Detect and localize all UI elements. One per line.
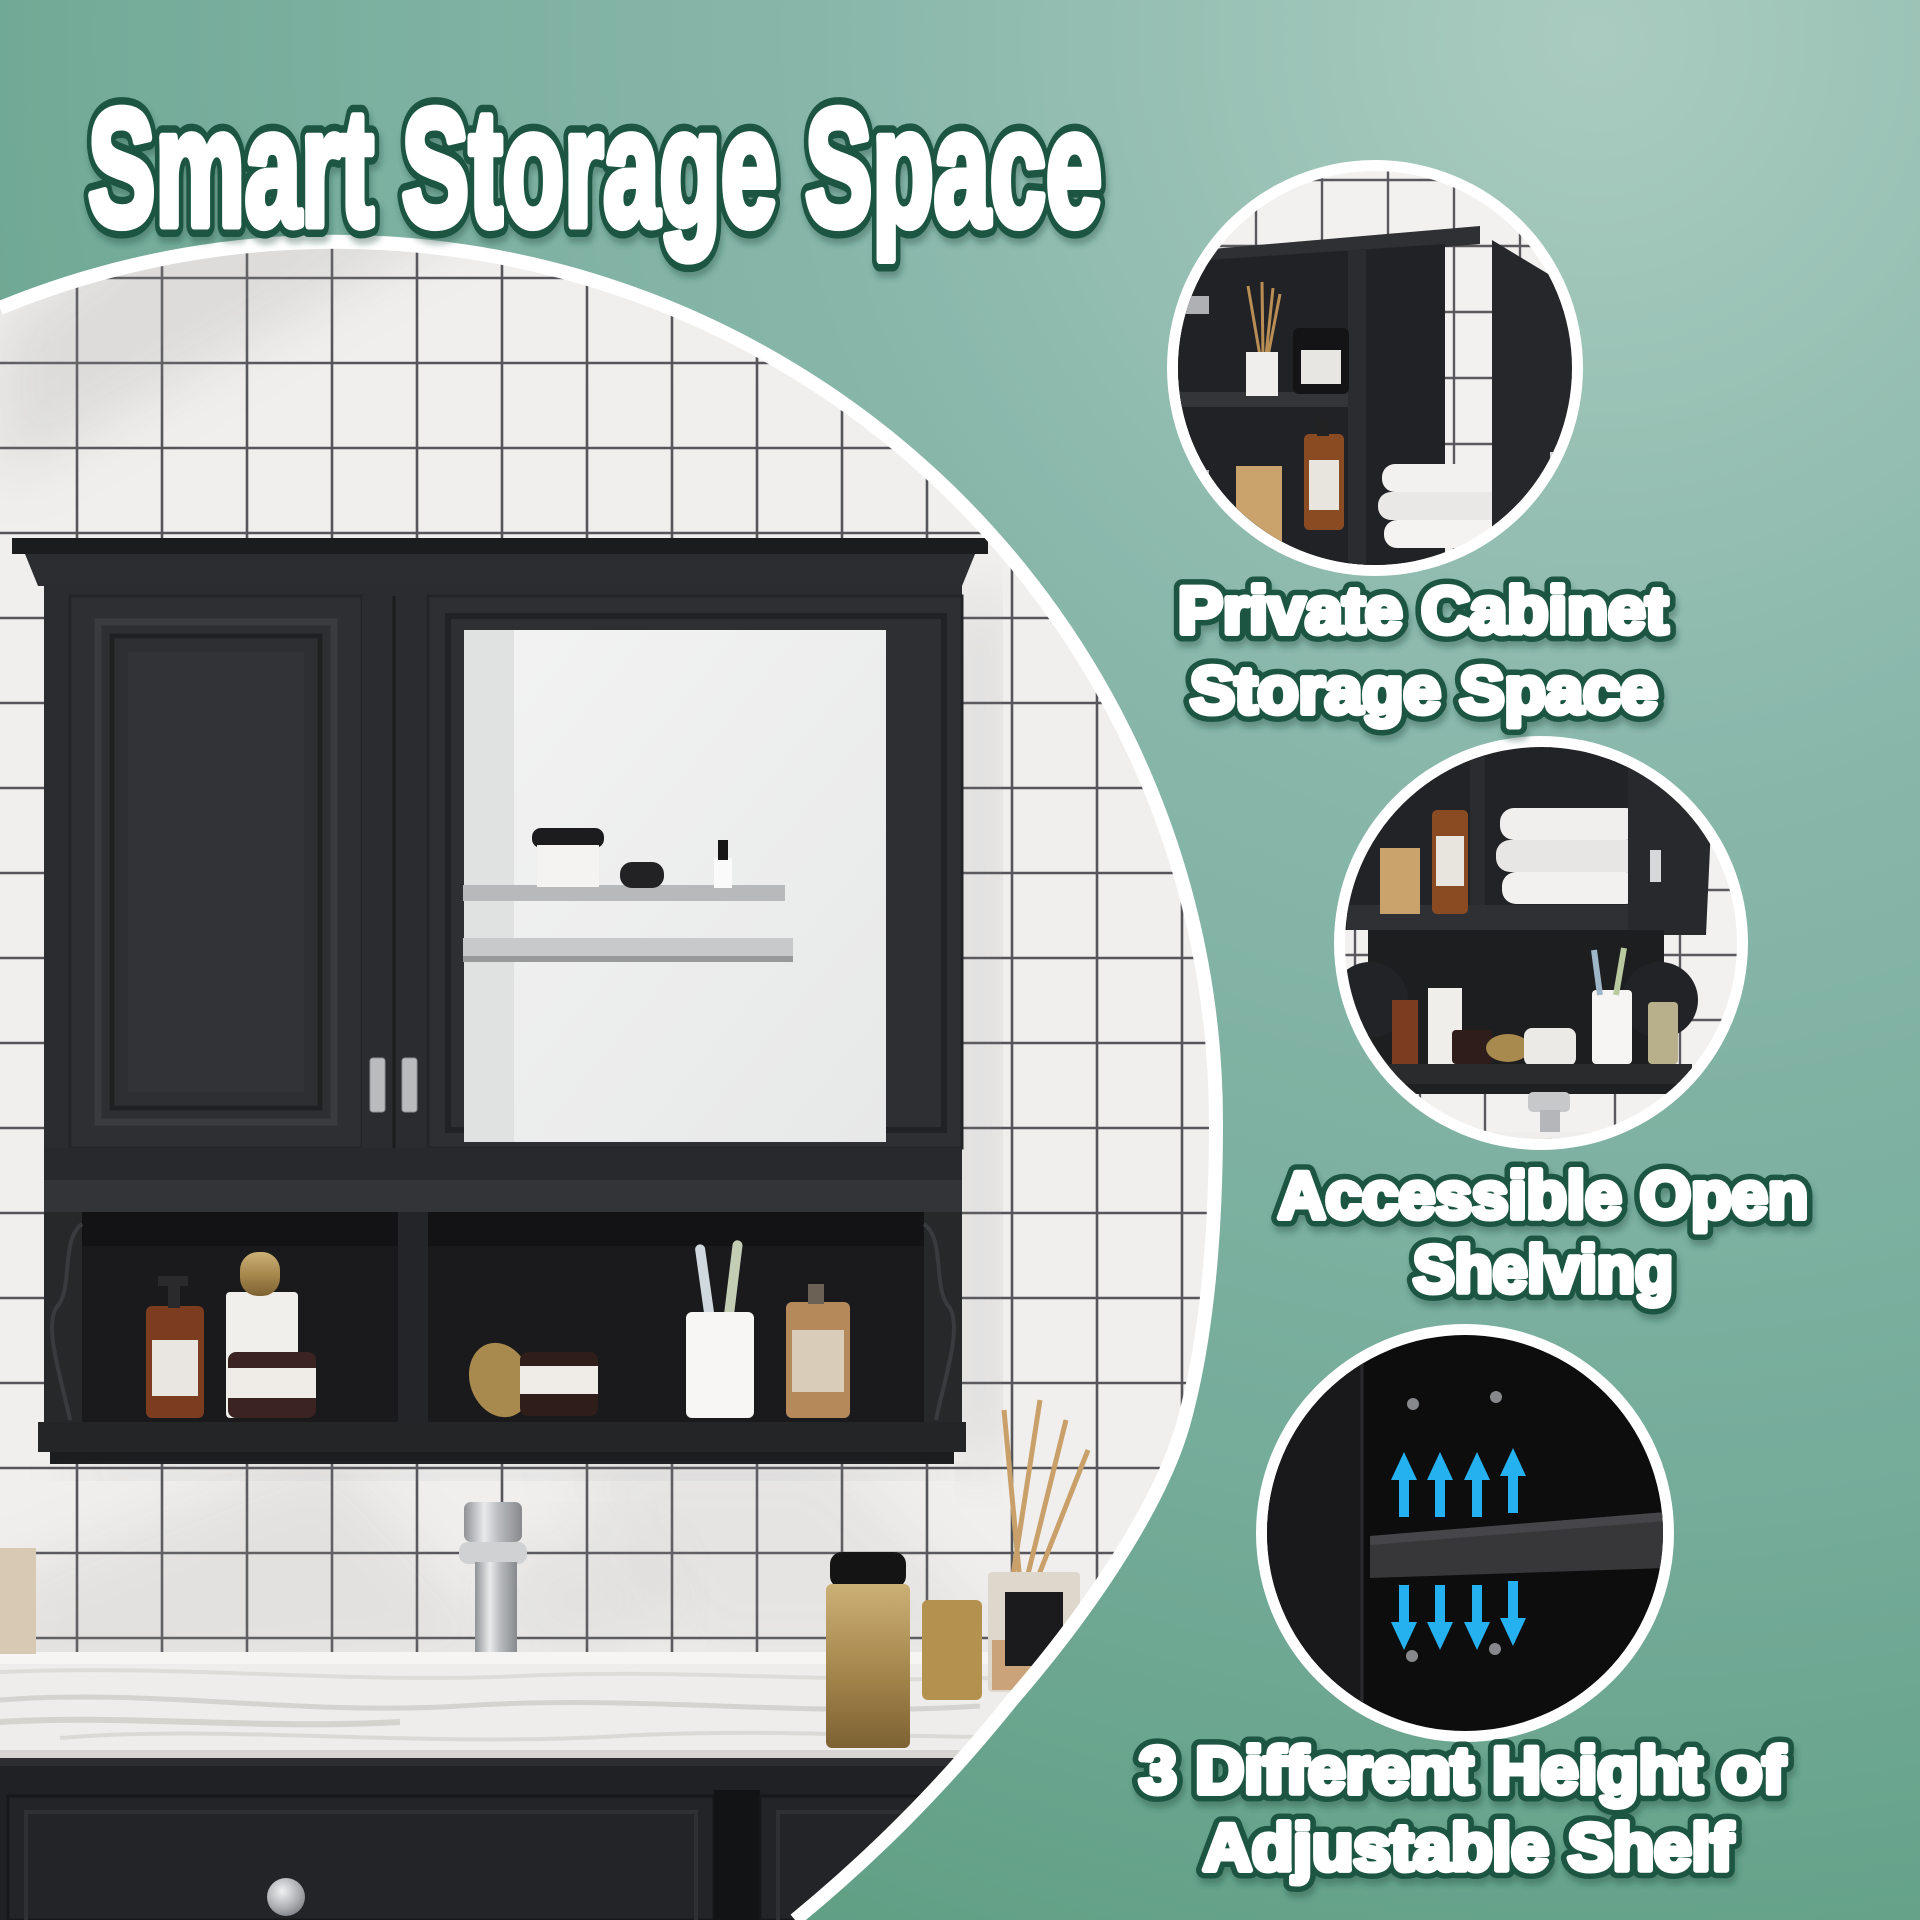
svg-text:Smart Storage Space: Smart Storage Space [88, 76, 1102, 261]
svg-text:Shelving: Shelving [1413, 1232, 1673, 1306]
svg-text:3 Different Height of: 3 Different Height of [1139, 1733, 1786, 1807]
svg-text:Private Cabinet: Private Cabinet [1178, 573, 1668, 647]
svg-text:Storage Space: Storage Space [1190, 653, 1658, 727]
svg-text:Accessible Open: Accessible Open [1278, 1158, 1808, 1232]
svg-text:Adjustable Shelf: Adjustable Shelf [1203, 1810, 1734, 1884]
